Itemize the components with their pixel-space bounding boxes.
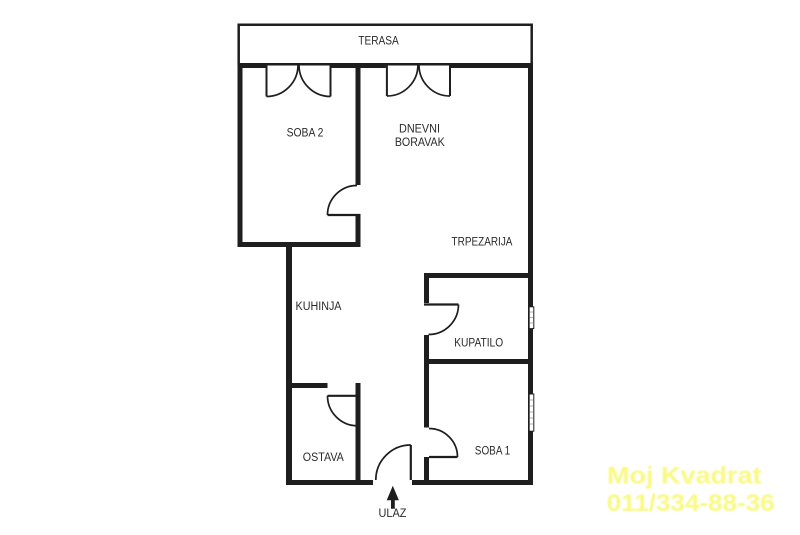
svg-text:TERASA: TERASA [358,35,399,48]
svg-text:SOBA 1: SOBA 1 [475,445,510,458]
svg-text:OSTAVA: OSTAVA [303,451,344,464]
svg-text:KUPATILO: KUPATILO [454,337,503,350]
svg-text:Moj Kvadrat: Moj Kvadrat [607,463,762,490]
svg-text:TRPEZARIJA: TRPEZARIJA [452,236,513,249]
svg-text:DNEVNI: DNEVNI [399,123,440,136]
svg-text:011/334-88-36: 011/334-88-36 [607,489,775,516]
svg-text:KUHINJA: KUHINJA [296,301,342,314]
svg-text:BORAVAK: BORAVAK [395,136,445,149]
svg-text:SOBA 2: SOBA 2 [287,127,324,140]
svg-text:ULAZ: ULAZ [379,508,407,521]
